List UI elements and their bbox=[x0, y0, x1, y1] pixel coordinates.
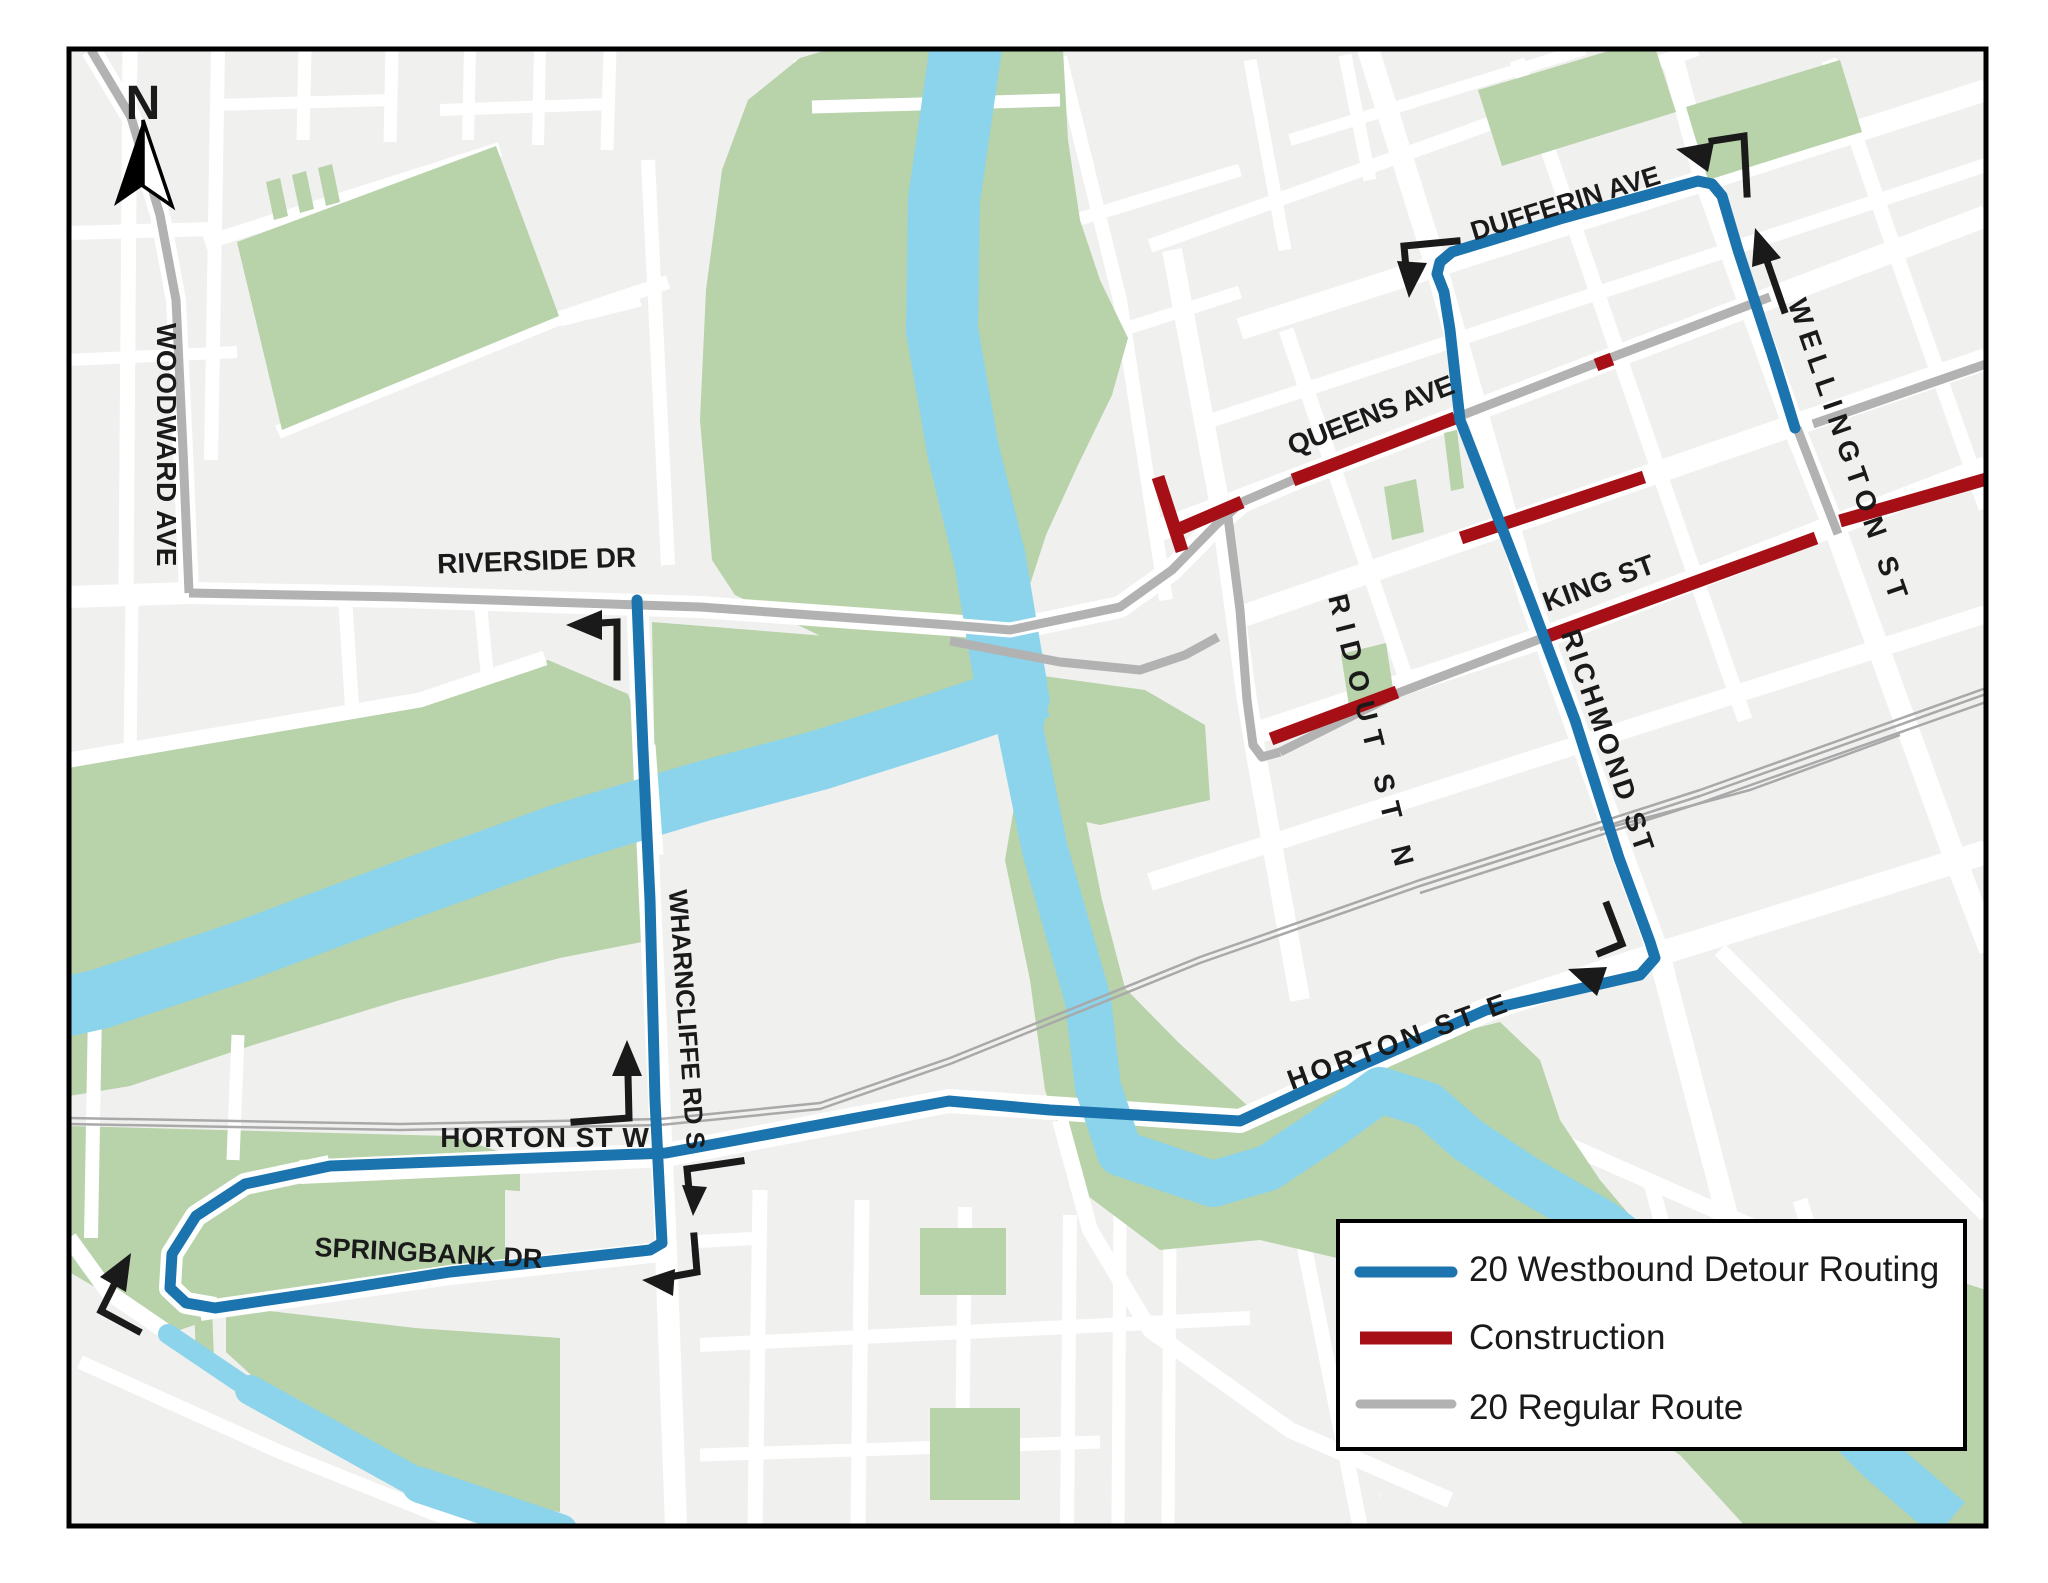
svg-text:HORTON ST W: HORTON ST W bbox=[440, 1122, 650, 1153]
svg-text:20 Regular Route: 20 Regular Route bbox=[1469, 1388, 1743, 1427]
svg-text:Construction: Construction bbox=[1469, 1318, 1665, 1357]
svg-text:WOODWARD AVE: WOODWARD AVE bbox=[151, 323, 182, 567]
svg-text:20 Westbound Detour Routing: 20 Westbound Detour Routing bbox=[1469, 1250, 1939, 1289]
